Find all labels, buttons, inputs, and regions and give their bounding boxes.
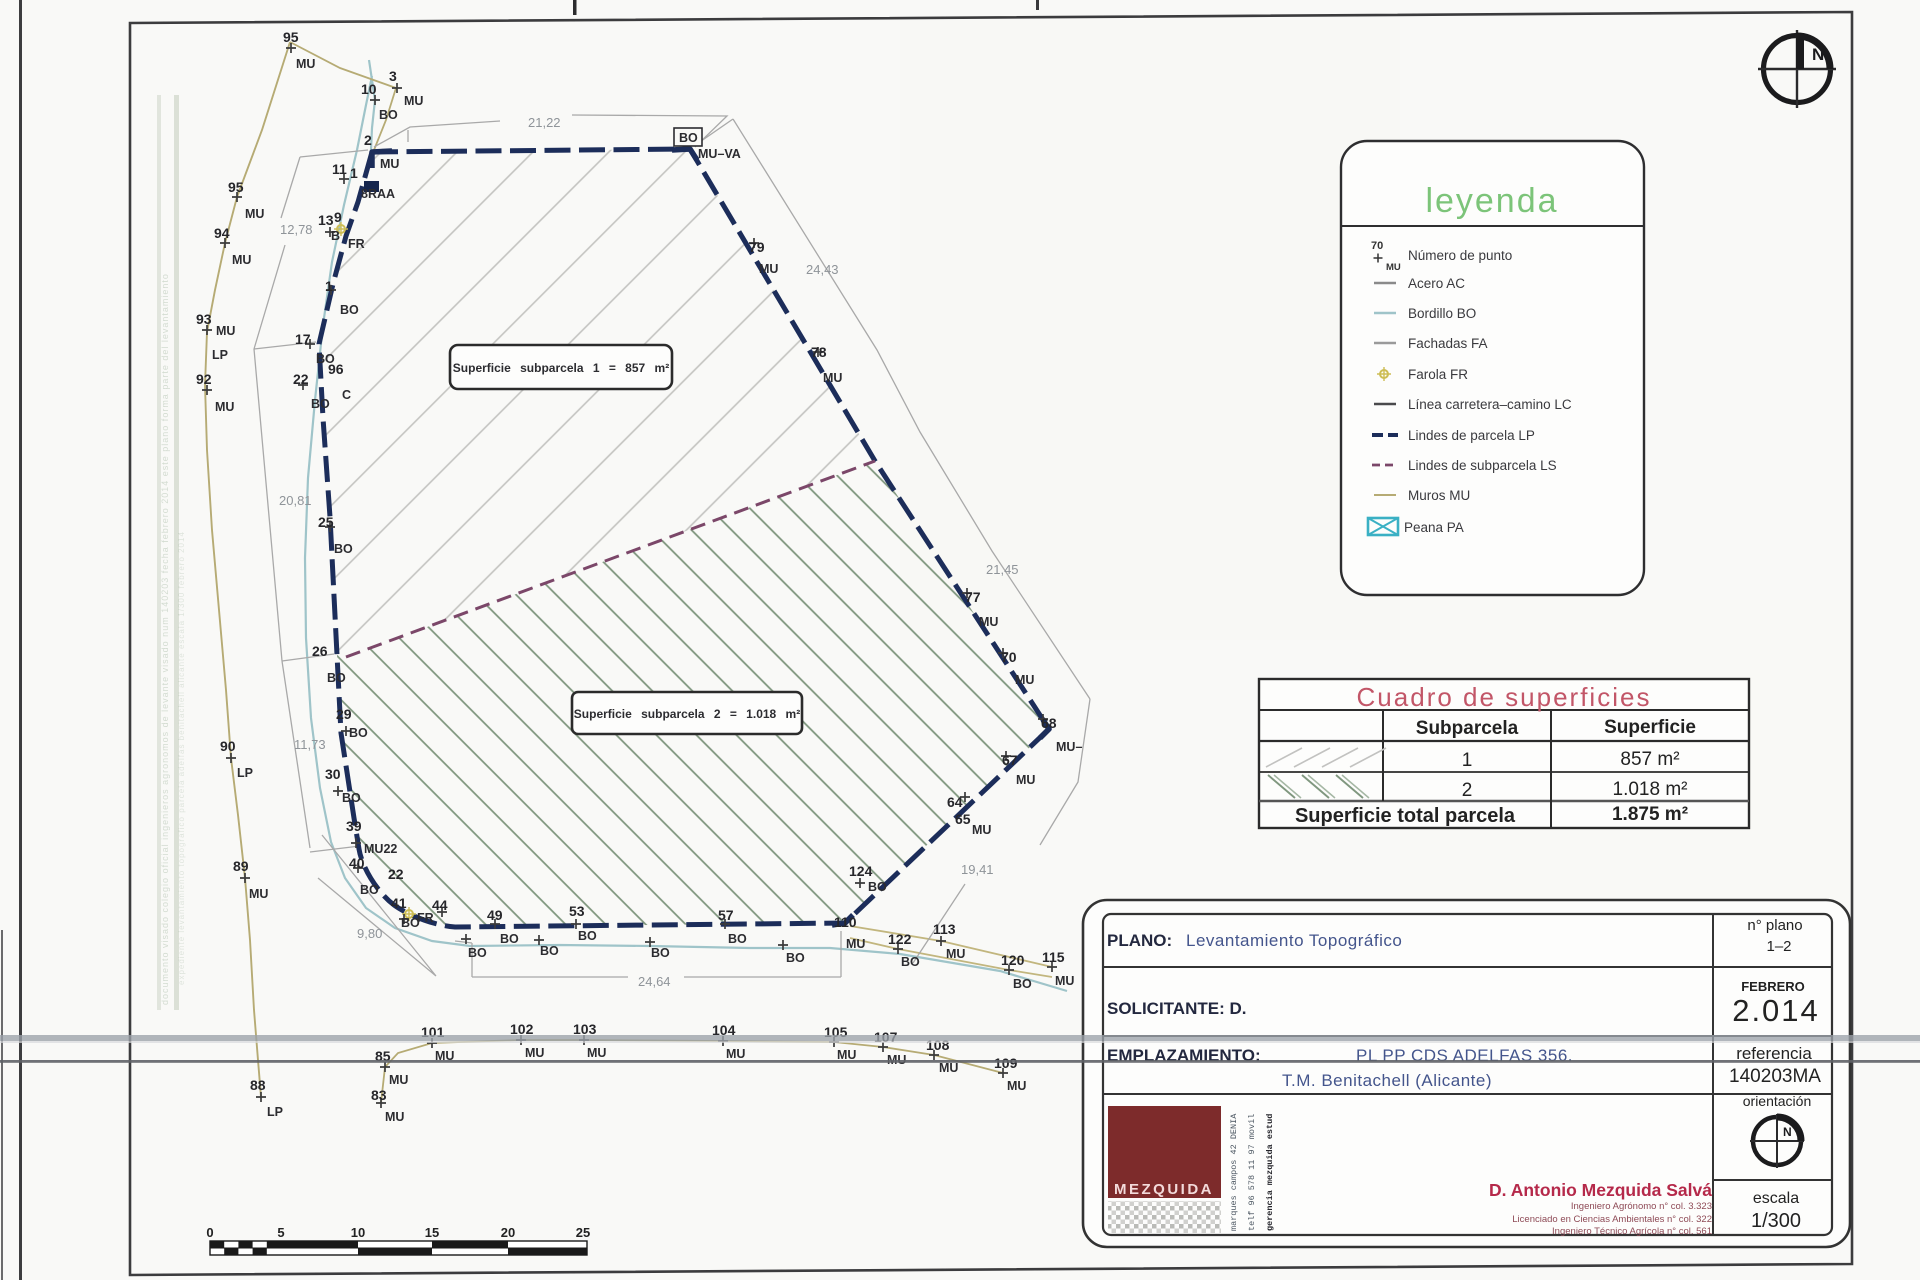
svg-text:MU: MU [972,823,991,837]
svg-text:MU: MU [1007,1079,1026,1093]
svg-text:Superficie total parcela: Superficie total parcela [1295,805,1516,827]
svg-text:LP: LP [267,1105,283,1119]
svg-text:MU: MU [823,371,842,385]
svg-text:10: 10 [361,81,377,97]
svg-text:29: 29 [336,706,352,722]
svg-text:857 m²: 857 m² [1620,749,1679,770]
svg-text:escala: escala [1753,1190,1799,1207]
svg-text:1: 1 [1462,750,1473,771]
svg-text:MU: MU [946,947,965,961]
svg-text:BO: BO [901,955,920,969]
svg-text:orientación: orientación [1743,1093,1812,1109]
svg-text:BO: BO [500,932,519,946]
svg-text:MU–VA: MU–VA [698,147,741,161]
svg-text:64: 64 [947,794,963,810]
svg-text:Línea carretera–camino LC: Línea carretera–camino LC [1408,397,1572,412]
svg-text:Levantamiento Topográfico: Levantamiento Topográfico [1186,931,1402,950]
svg-text:3: 3 [389,68,397,84]
svg-text:65: 65 [955,811,971,827]
svg-text:telf 96 578 11 97 movil: telf 96 578 11 97 movil [1247,1114,1257,1231]
svg-text:70: 70 [1371,240,1383,252]
svg-text:BO: BO [311,397,330,411]
svg-text:n° plano: n° plano [1747,917,1802,934]
svg-text:12,78: 12,78 [280,222,313,237]
svg-text:83: 83 [371,1087,387,1103]
svg-text:BO: BO [468,946,487,960]
svg-text:20: 20 [501,1225,515,1240]
svg-text:leyenda: leyenda [1425,182,1558,220]
svg-text:Fachadas FA: Fachadas FA [1408,336,1488,351]
svg-text:Farola FR: Farola FR [1408,367,1468,382]
svg-text:20,81: 20,81 [279,493,312,508]
svg-text:BO: BO [1013,977,1032,991]
svg-text:documento visado colegio ofici: documento visado colegio oficial ingenie… [160,273,170,1005]
svg-text:53: 53 [569,903,585,919]
svg-text:140203MA: 140203MA [1729,1066,1821,1087]
svg-text:103: 103 [573,1021,597,1037]
svg-text:MU: MU [245,207,264,221]
svg-text:MU: MU [216,324,235,338]
svg-text:8RAA: 8RAA [361,187,395,201]
svg-text:Acero AC: Acero AC [1408,276,1465,291]
svg-text:Lindes de subparcela LS: Lindes de subparcela LS [1408,458,1557,473]
svg-text:MU: MU [759,262,778,276]
svg-text:BO: BO [651,946,670,960]
svg-text:Bordillo BO: Bordillo BO [1408,306,1476,321]
svg-text:1.018 m²: 1.018 m² [1613,779,1688,800]
svg-text:BO: BO [578,929,597,943]
svg-text:110: 110 [834,914,857,930]
svg-text:41: 41 [391,895,407,911]
svg-text:57: 57 [718,907,734,923]
svg-text:MU: MU [389,1073,408,1087]
svg-text:90: 90 [220,738,236,754]
svg-text:BO: BO [679,131,698,145]
svg-text:Cuadro de superficies: Cuadro de superficies [1357,682,1652,712]
svg-text:FEBRERO: FEBRERO [1741,979,1805,994]
svg-text:95: 95 [283,29,299,45]
svg-text:FR: FR [417,911,434,925]
svg-text:15: 15 [425,1225,439,1240]
svg-text:C: C [342,388,351,402]
svg-text:MU: MU [979,615,998,629]
svg-text:9: 9 [334,209,342,225]
svg-text:Lindes de parcela LP: Lindes de parcela LP [1408,428,1535,443]
svg-text:BO: BO [342,791,361,805]
svg-text:MU: MU [404,94,423,108]
svg-text:21,22: 21,22 [528,115,561,130]
svg-text:21,45: 21,45 [986,562,1019,577]
svg-text:40: 40 [349,855,365,871]
svg-text:113: 113 [933,921,956,937]
svg-text:24,64: 24,64 [638,974,671,989]
svg-text:BO: BO [340,303,359,317]
svg-text:13: 13 [318,212,334,228]
svg-text:BO: BO [728,932,747,946]
svg-text:BO: BO [349,726,368,740]
svg-text:MU: MU [249,887,268,901]
svg-text:79: 79 [749,239,765,255]
svg-text:22: 22 [293,371,309,387]
svg-text:44: 44 [432,897,448,913]
svg-text:92: 92 [196,371,212,387]
svg-text:SOLICITANTE: D.: SOLICITANTE: D. [1107,999,1246,1018]
svg-text:Superficie subparcela 1 = 857: Superficie subparcela 1 = 857 m² [453,361,669,375]
svg-text:0: 0 [206,1225,213,1240]
svg-text:88: 88 [250,1077,266,1093]
svg-text:109: 109 [994,1055,1018,1071]
svg-text:1/300: 1/300 [1751,1210,1801,1232]
svg-text:120: 120 [1001,952,1025,968]
svg-text:1: 1 [325,278,333,294]
svg-text:MU: MU [1016,773,1035,787]
svg-text:MU22: MU22 [364,842,397,856]
svg-text:PLANO:: PLANO: [1107,931,1172,950]
svg-text:19,41: 19,41 [961,862,994,877]
svg-text:30: 30 [325,766,341,782]
svg-text:22: 22 [388,866,404,882]
svg-text:1–2: 1–2 [1766,938,1791,955]
svg-text:MU: MU [380,157,399,171]
svg-text:77: 77 [965,589,981,605]
svg-text:MU: MU [587,1046,606,1060]
svg-text:24,43: 24,43 [806,262,839,277]
svg-text:9,80: 9,80 [357,926,382,941]
svg-text:MU: MU [837,1048,856,1062]
svg-text:Número de punto: Número de punto [1408,248,1512,263]
svg-text:MU–: MU– [1056,740,1082,754]
svg-text:MU: MU [1055,974,1074,988]
svg-text:MU: MU [939,1061,958,1075]
svg-text:Subparcela: Subparcela [1416,718,1519,739]
svg-text:MU: MU [1386,262,1401,273]
svg-text:LP: LP [237,766,253,780]
svg-text:Licenciado en Ciencias Ambient: Licenciado en Ciencias Ambientales n° co… [1512,1214,1712,1225]
svg-text:95: 95 [228,179,244,195]
svg-text:N: N [1783,1125,1792,1139]
svg-text:25: 25 [576,1225,590,1240]
svg-text:5: 5 [277,1225,284,1240]
svg-text:70: 70 [1001,649,1017,665]
svg-text:102: 102 [510,1021,534,1037]
svg-text:MU: MU [385,1110,404,1124]
svg-text:BO: BO [316,352,335,366]
svg-text:MU: MU [296,57,315,71]
svg-text:115: 115 [1042,949,1065,965]
svg-text:T.M. Benitachell (Alicante): T.M. Benitachell (Alicante) [1282,1071,1492,1090]
svg-text:11: 11 [332,161,347,177]
svg-text:FR: FR [348,237,365,251]
svg-text:Superficie subparcela 2 = 1.01: Superficie subparcela 2 = 1.018 m² [574,707,800,721]
svg-text:Superficie: Superficie [1604,717,1696,738]
svg-text:BO: BO [868,880,887,894]
svg-text:MU: MU [232,253,251,267]
svg-text:89: 89 [233,858,249,874]
svg-text:D. Antonio Mezquida Salvá: D. Antonio Mezquida Salvá [1489,1180,1712,1200]
svg-text:1.875 m²: 1.875 m² [1612,804,1688,825]
svg-text:BO: BO [786,951,805,965]
svg-text:93: 93 [196,311,212,327]
svg-text:BO: BO [540,944,559,958]
svg-text:39: 39 [346,818,362,834]
svg-text:Ingeniero Técnico Agrícola n°: Ingeniero Técnico Agrícola n° col. 561 [1552,1226,1712,1237]
svg-text:BO: BO [360,883,379,897]
svg-text:B: B [331,229,340,243]
svg-text:MU: MU [215,400,234,414]
svg-text:gerencia mezquida estud: gerencia mezquida estud [1265,1114,1275,1231]
svg-text:Peana PA: Peana PA [1404,520,1464,535]
svg-text:MU: MU [726,1047,745,1061]
svg-text:BO: BO [327,671,346,685]
svg-text:BO: BO [334,542,353,556]
svg-text:94: 94 [214,225,230,241]
svg-text:Muros MU: Muros MU [1408,488,1470,503]
svg-text:122: 122 [888,931,912,947]
svg-text:expediente levantamiento topog: expediente levantamiento topografico par… [177,531,186,985]
svg-text:11,73: 11,73 [294,737,326,752]
svg-text:124: 124 [849,863,873,879]
svg-text:67: 67 [1002,752,1018,768]
svg-text:2: 2 [364,132,372,148]
svg-text:LP: LP [212,348,228,362]
svg-text:MU: MU [1015,673,1034,687]
svg-text:10: 10 [351,1225,365,1240]
svg-text:25: 25 [318,514,334,530]
svg-text:MU: MU [525,1046,544,1060]
svg-text:Ingeniero Agrónomo n° col. 3.3: Ingeniero Agrónomo n° col. 3.323 [1571,1201,1712,1212]
svg-text:BO: BO [379,108,398,122]
svg-text:49: 49 [487,907,503,923]
svg-text:26: 26 [312,643,328,659]
svg-text:68: 68 [1041,715,1057,731]
svg-text:MU: MU [846,937,865,951]
svg-text:2.014: 2.014 [1732,993,1820,1028]
svg-text:17: 17 [295,331,311,347]
svg-text:1: 1 [350,165,358,181]
svg-text:marques campos 42 DENIA: marques campos 42 DENIA [1229,1113,1239,1231]
svg-text:2: 2 [1462,780,1473,801]
svg-text:MEZQUIDA: MEZQUIDA [1114,1181,1214,1198]
svg-text:78: 78 [811,344,827,360]
